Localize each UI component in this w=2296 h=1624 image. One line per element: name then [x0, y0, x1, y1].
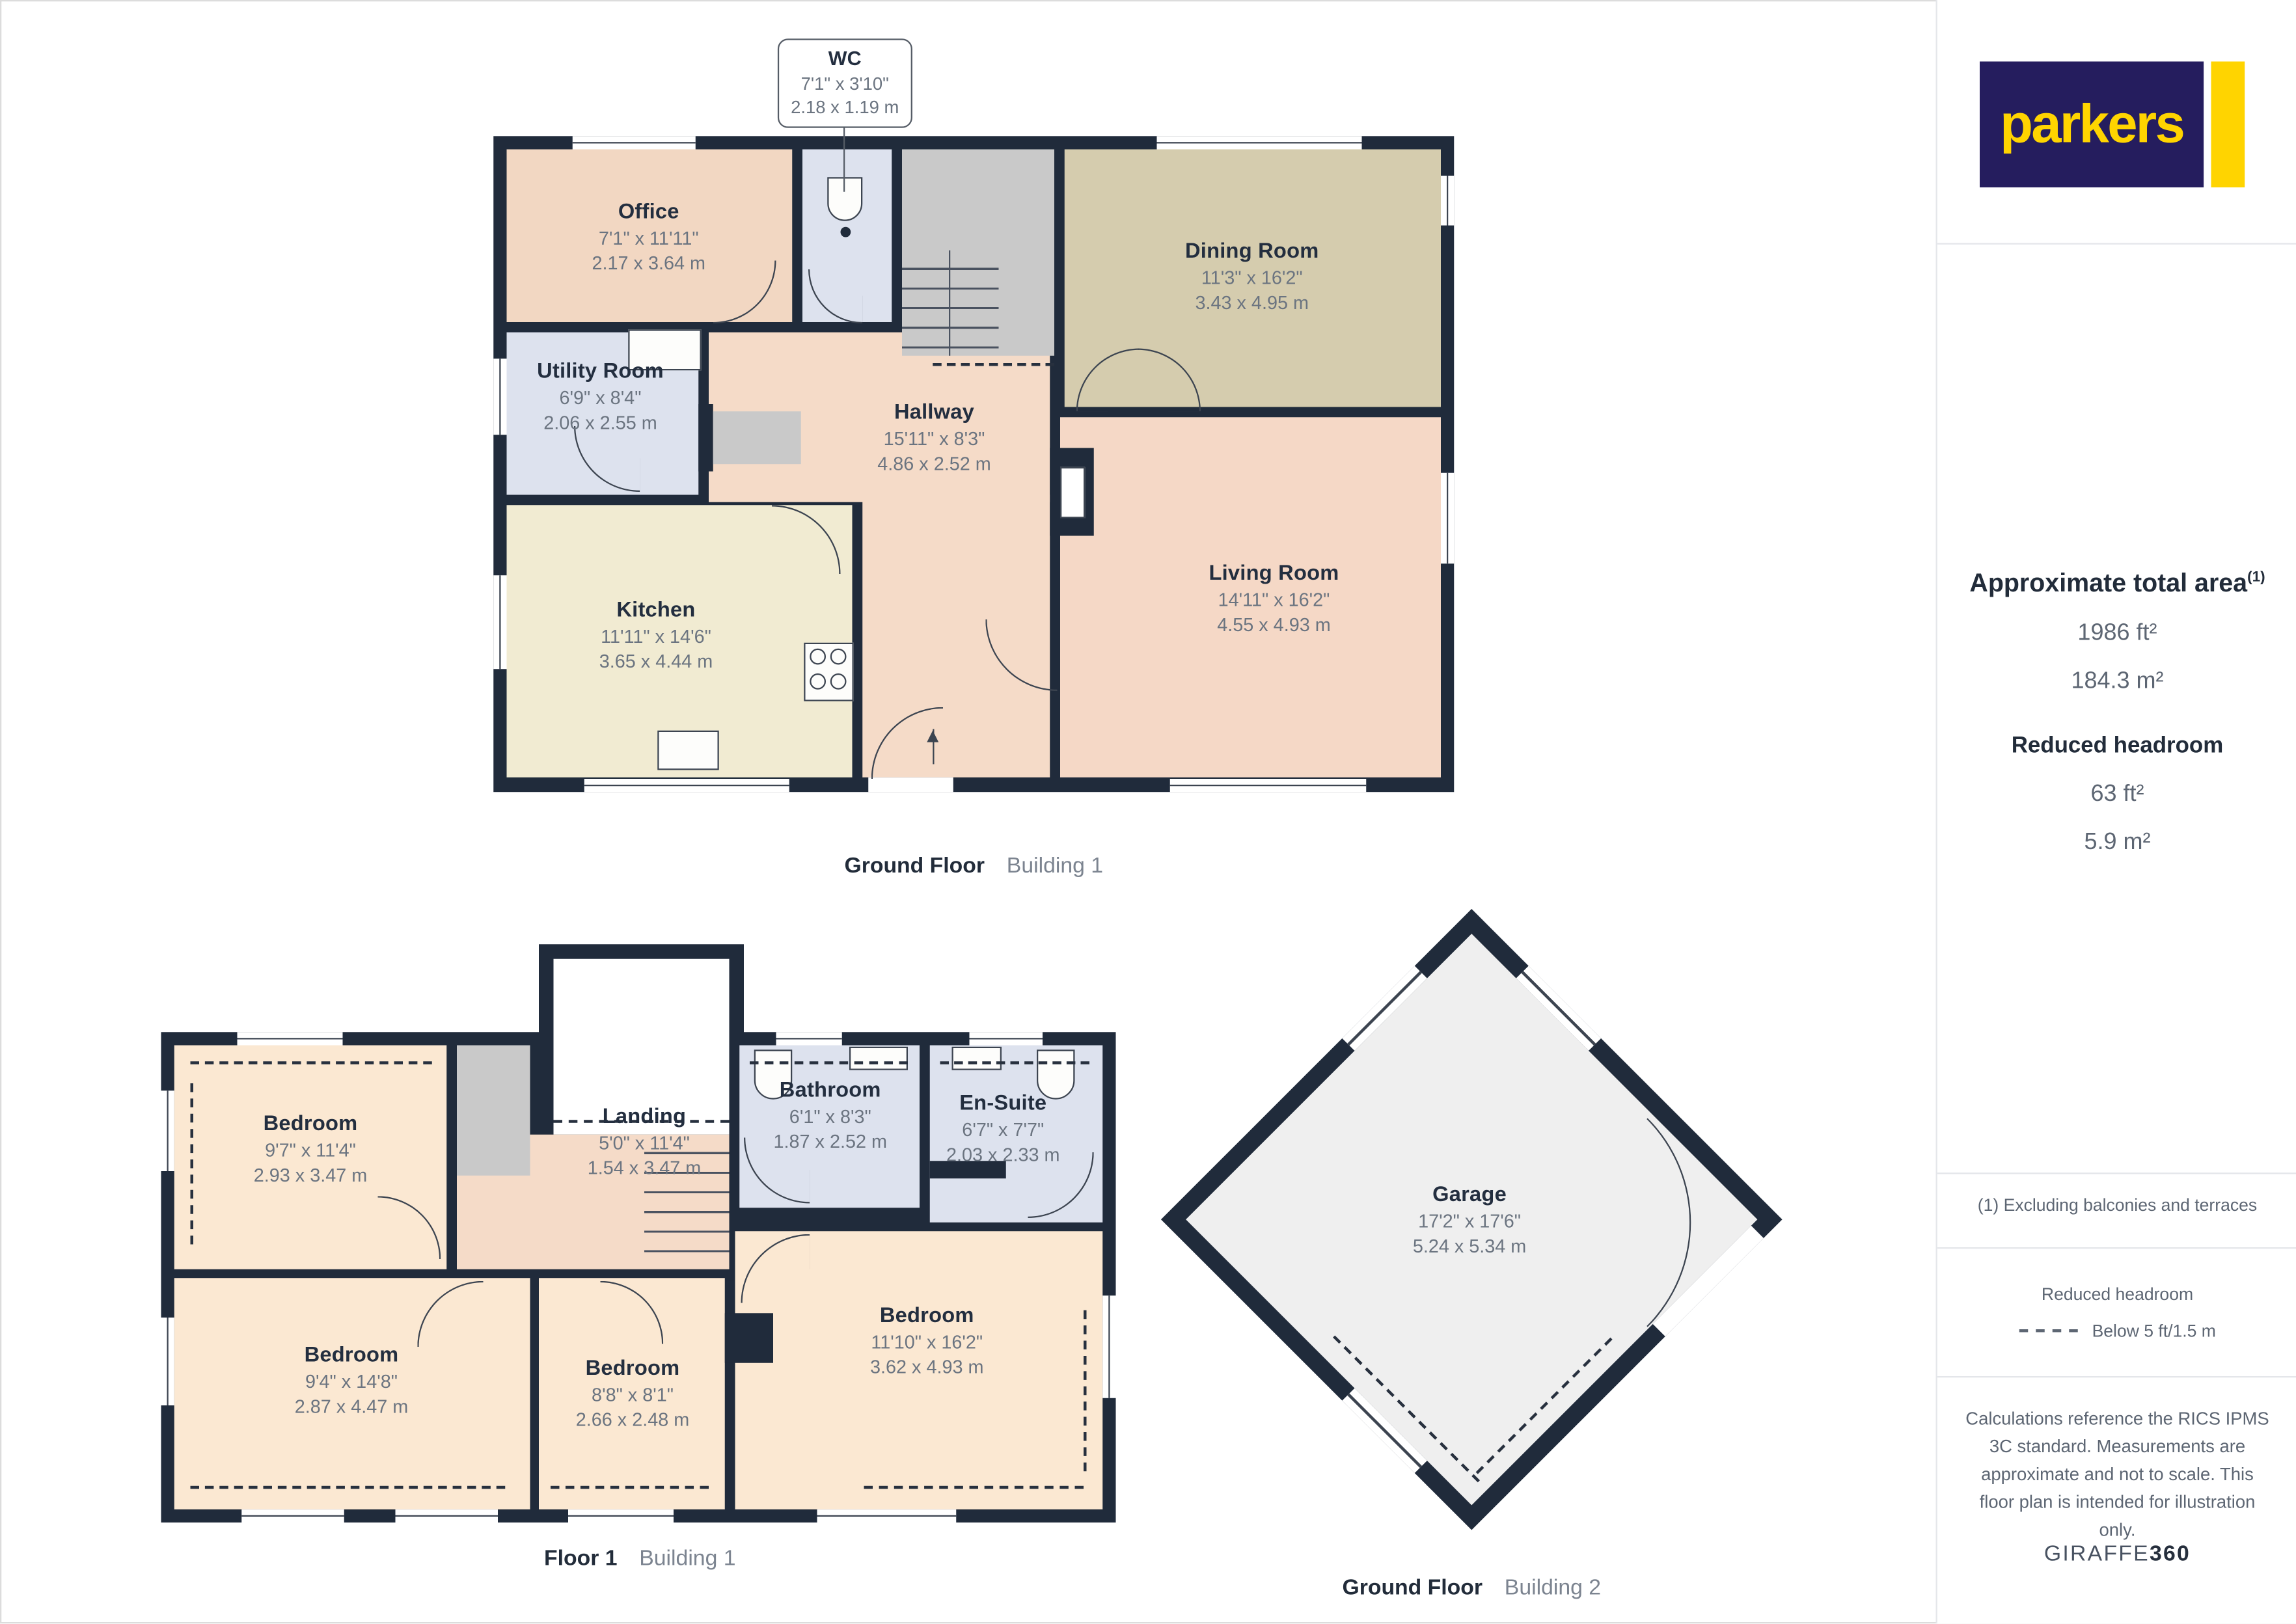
legend-row: Below 5 ft/1.5 m	[1937, 1321, 2296, 1342]
floorplan-page: Office 7'1" x 11'11" 2.17 x 3.64 m Dinin…	[0, 0, 2296, 1624]
area-footnote: (1) Excluding balconies and terraces	[1937, 1195, 2296, 1215]
room-label-dining: Dining Room 11'3" x 16'2" 3.43 x 4.95 m	[1185, 240, 1319, 316]
living-fireplace-icon	[1060, 467, 1085, 519]
wc-toilet-icon	[827, 177, 862, 221]
room-label-bedroom-r: Bedroom 11'10" x 16'2" 3.62 x 4.93 m	[870, 1305, 983, 1381]
parkers-logo-gap	[2204, 62, 2211, 188]
bedroom-r-headroom-dash-right	[1084, 1310, 1087, 1472]
sidebar-divider-4	[1937, 1376, 2296, 1377]
gf1-reduced-headroom-dash	[933, 363, 1054, 366]
ensuite-basin-icon	[952, 1047, 1002, 1070]
sidebar-divider-2	[1937, 1172, 2296, 1174]
bedroom-tl-headroom-dash	[191, 1061, 432, 1064]
bedroom-bl-window-bottom2	[396, 1509, 499, 1522]
room-label-living: Living Room 14'11" x 16'2" 4.55 x 4.93 m	[1209, 562, 1339, 638]
floor1-building1-plan: Bedroom 9'7" x 11'4" 2.93 x 3.47 m Landi…	[161, 944, 1116, 1522]
front-door-opening	[868, 778, 953, 792]
sidebar-divider-1	[1937, 243, 2296, 245]
floorplan-canvas: Office 7'1" x 11'11" 2.17 x 3.64 m Dinin…	[0, 0, 2296, 1624]
parkers-logo-box: parkers	[1980, 62, 2204, 188]
wc-callout: WC 7'1" x 3'10" 2.18 x 1.19 m	[778, 38, 912, 128]
bedroom-bl-window-left	[161, 1318, 174, 1405]
garage-building2-plan: Garage 17'2" x 17'6" 5.24 x 5.34 m	[1161, 909, 1783, 1530]
reduced-headroom-m: 5.9 m²	[1937, 830, 2296, 857]
living-window-right	[1441, 473, 1454, 564]
reduced-headroom-title: Reduced headroom	[1937, 733, 2296, 760]
ground-floor-building1-plan: Office 7'1" x 11'11" 2.17 x 3.64 m Dinin…	[493, 136, 1454, 792]
wc-toilet-dot-icon	[841, 227, 851, 237]
parkers-logo: parkers	[1980, 62, 2245, 188]
room-label-garage: Garage 17'2" x 17'6" 5.24 x 5.34 m	[1413, 1184, 1526, 1260]
room-label-hallway: Hallway 15'11" x 8'3" 4.86 x 2.52 m	[877, 401, 991, 478]
bedroom-tl-window-left	[161, 1090, 174, 1171]
parkers-logo-bar	[2211, 62, 2245, 188]
entrance-arrow-icon	[933, 729, 934, 765]
room-label-bedroom-tl: Bedroom 9'7" x 11'4" 2.93 x 3.47 m	[254, 1113, 367, 1189]
caption-ground-floor-building2: Ground FloorBuilding 2	[1342, 1575, 1601, 1600]
giraffe360-brand: GIRAFFE360	[1937, 1541, 2296, 1566]
info-sidebar: parkers Approximate total area(1) 1986 f…	[1936, 0, 2296, 1624]
dining-window-right	[1441, 176, 1454, 226]
dining-window-top	[1157, 136, 1362, 149]
wc-callout-line	[843, 122, 845, 192]
parkers-logo-text: parkers	[2000, 94, 2183, 156]
gf1-stair-rail	[949, 250, 950, 356]
room-label-bedroom-bm: Bedroom 8'8" x 8'1" 2.66 x 2.48 m	[576, 1357, 689, 1433]
total-area-footnote-marker: (1)	[2247, 570, 2265, 586]
kitchen-window-bottom	[584, 779, 789, 792]
room-label-office: Office 7'1" x 11'11" 2.17 x 3.64 m	[592, 200, 705, 277]
gf1-cupboard	[713, 411, 801, 464]
total-area-title: Approximate total area(1)	[1937, 568, 2296, 599]
bedroom-r-window-right	[1102, 1295, 1115, 1398]
room-label-bathroom: Bathroom 6'1" x 8'3" 1.87 x 2.52 m	[774, 1079, 887, 1155]
room-label-ensuite: En-Suite 6'7" x 7'7" 2.03 x 2.33 m	[946, 1092, 1059, 1169]
total-area-m: 184.3 m²	[1937, 669, 2296, 696]
ensuite-headroom-dash	[940, 1061, 1090, 1064]
sidebar-divider-3	[1937, 1247, 2296, 1249]
bedroom-bm-headroom-dash	[551, 1486, 709, 1489]
caption-ground-floor-building1: Ground FloorBuilding 1	[844, 854, 1103, 878]
office-window	[573, 136, 696, 149]
room-label-kitchen: Kitchen 11'11" x 14'6" 3.65 x 4.44 m	[599, 599, 713, 675]
bedroom-r-headroom-dash	[864, 1486, 1084, 1489]
f1-chimney	[725, 1313, 773, 1363]
bedroom-bm-window-bottom	[568, 1509, 674, 1522]
bathroom-window-top	[776, 1032, 842, 1045]
kitchen-sink-icon	[657, 731, 719, 770]
bedroom-bl-window-bottom1	[241, 1509, 344, 1522]
total-area-block: Approximate total area(1) 1986 ft² 184.3…	[1937, 568, 2296, 856]
caption-floor1-building1: Floor 1Building 1	[544, 1546, 736, 1571]
bedroom-bl-headroom-dash	[191, 1486, 506, 1489]
bathroom-headroom-dash	[750, 1061, 908, 1064]
bedroom-tl-window-top	[238, 1032, 343, 1045]
room-label-landing: Landing 5'0" x 11'4" 1.54 x 3.47 m	[588, 1105, 701, 1182]
total-area-ft: 1986 ft²	[1937, 621, 2296, 647]
legend-label: Below 5 ft/1.5 m	[2092, 1321, 2216, 1342]
living-window-bottom	[1170, 779, 1367, 792]
reduced-headroom-dash-icon	[2019, 1329, 2077, 1333]
utility-window	[493, 359, 506, 435]
gf1-stair-treads	[902, 250, 999, 356]
kitchen-window-left	[493, 575, 506, 669]
ensuite-window-top	[970, 1032, 1043, 1045]
gf1-cupboard-wall	[698, 404, 713, 472]
room-label-bedroom-bl: Bedroom 9'4" x 14'8" 2.87 x 4.47 m	[295, 1344, 408, 1420]
room-label-utility: Utility Room 6'9" x 8'4" 2.06 x 2.55 m	[537, 360, 664, 437]
kitchen-hob-icon	[804, 643, 854, 701]
f1-closet	[457, 1046, 530, 1176]
reduced-headroom-ft: 63 ft²	[1937, 782, 2296, 809]
bedroom-tl-headroom-dash-left	[191, 1083, 194, 1245]
bedroom-r-window-bottom	[817, 1509, 957, 1522]
disclaimer-text: Calculations reference the RICS IPMS 3C …	[1937, 1405, 2296, 1544]
bathroom-bath-icon	[849, 1047, 908, 1070]
legend-title: Reduced headroom	[1937, 1284, 2296, 1305]
